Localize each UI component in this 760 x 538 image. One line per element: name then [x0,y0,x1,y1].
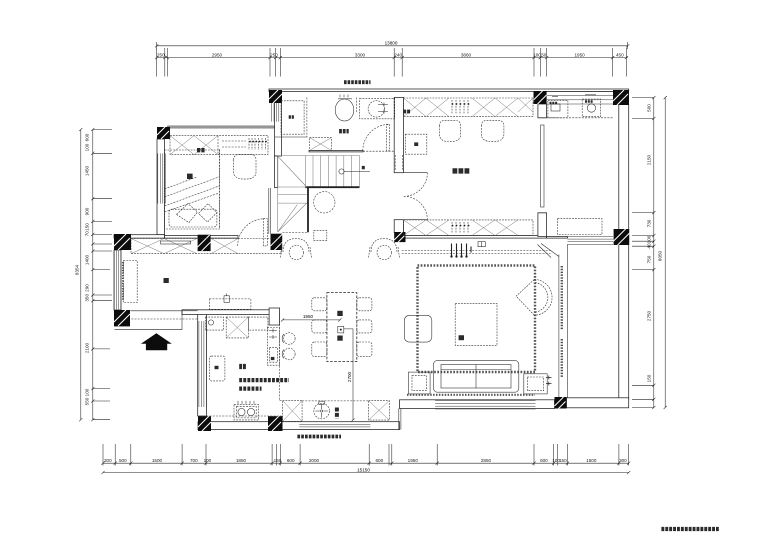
svg-text:2700: 2700 [347,371,352,382]
svg-text:100: 100 [85,388,90,396]
svg-text:100: 100 [85,143,90,151]
svg-text:2850: 2850 [481,458,492,463]
svg-text:1400: 1400 [85,254,90,265]
svg-text:3860: 3860 [461,53,472,58]
svg-text:2750: 2750 [647,310,652,321]
svg-text:8050: 8050 [658,250,663,261]
svg-text:600: 600 [540,458,548,463]
svg-text:50: 50 [541,53,547,58]
svg-text:1500: 1500 [586,458,597,463]
svg-text:150: 150 [647,374,652,382]
svg-text:1950: 1950 [574,53,585,58]
svg-text:1500: 1500 [152,458,163,463]
svg-text:600: 600 [85,133,90,141]
svg-text:150: 150 [559,458,567,463]
svg-text:900: 900 [85,207,90,215]
svg-text:2950: 2950 [212,53,223,58]
svg-text:750: 750 [647,255,652,263]
svg-text:150: 150 [85,223,90,231]
svg-text:730: 730 [647,219,652,227]
svg-text:600: 600 [375,458,383,463]
svg-text:15150: 15150 [357,468,370,473]
svg-text:250: 250 [157,53,165,58]
svg-text:13800: 13800 [385,41,398,46]
svg-text:100: 100 [647,235,652,243]
svg-text:1450: 1450 [85,165,90,176]
svg-text:350: 350 [85,294,90,302]
svg-text:70: 70 [85,231,90,237]
svg-text:100: 100 [204,458,212,463]
svg-text:300: 300 [104,458,112,463]
svg-text:240: 240 [394,53,402,58]
svg-text:450: 450 [616,53,624,58]
svg-text:3300: 3300 [355,53,366,58]
svg-text:500: 500 [647,104,652,112]
svg-text:500: 500 [119,458,127,463]
svg-text:600: 600 [287,458,295,463]
svg-text:150: 150 [274,458,282,463]
svg-text:2150: 2150 [647,154,652,165]
svg-text:290: 290 [85,284,90,292]
svg-text:8354: 8354 [74,264,79,275]
svg-text:1850: 1850 [236,458,247,463]
svg-text:250: 250 [270,53,278,58]
svg-text:1950: 1950 [408,458,419,463]
svg-text:2000: 2000 [309,458,320,463]
svg-text:550: 550 [85,397,90,405]
svg-text:1950: 1950 [303,314,314,319]
svg-text:100: 100 [533,53,541,58]
svg-text:300: 300 [619,458,627,463]
svg-text:700: 700 [190,458,198,463]
svg-text:40: 40 [647,243,652,249]
svg-text:2100: 2100 [85,342,90,353]
